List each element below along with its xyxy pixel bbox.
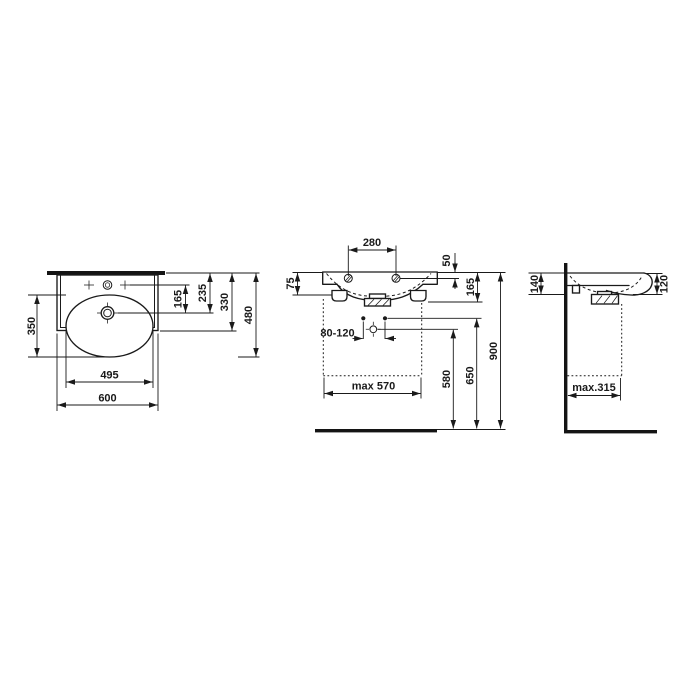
dim-label-rim-to-outlet: 165 [465, 278, 477, 296]
dim-label-overall-depth: 480 [243, 306, 255, 324]
dim-label-clearance-width: max 570 [352, 381, 395, 393]
top-view: 350 165 235 330 480 495 600 [26, 271, 260, 411]
front-view: 280 50 75 165 80-120 max 570 580 650 900 [285, 237, 506, 432]
dim-label-hole-offset: 50 [441, 254, 453, 266]
dim-label-outlet-height: 580 [441, 370, 453, 388]
dimension-drawing-canvas: 350 165 235 330 480 495 600 [0, 0, 700, 700]
dim-label-bowl-depth: 350 [26, 317, 38, 335]
right-mounting-hole-hatch [393, 275, 399, 281]
washbasin-technical-drawing: 350 165 235 330 480 495 600 [0, 0, 700, 700]
side-wall-bracket [573, 286, 580, 294]
side-view: 140 120 max.315 [529, 263, 671, 433]
dim-label-fixing-spacing: 80-120 [320, 328, 354, 340]
clearance-box-side [567, 304, 621, 376]
dim-label-fixing-height: 650 [465, 366, 477, 384]
left-mounting-hole-hatch [346, 275, 352, 281]
left-bracket-foot [332, 291, 347, 302]
dim-label-tap-centres: 280 [363, 237, 381, 249]
dim-label-front-depth: 120 [659, 275, 671, 293]
dim-label-bowl-width: 495 [100, 370, 118, 382]
dim-label-clearance-depth: max.315 [572, 382, 615, 394]
side-front-bulge [607, 273, 653, 295]
dim-label-overall-width: 600 [98, 393, 116, 405]
right-bracket-foot [411, 291, 427, 302]
dim-label-wall-depth: 140 [529, 275, 541, 293]
floor-bar-side [564, 430, 657, 433]
dim-label-rim-height: 900 [488, 342, 500, 360]
outlet-axis-symbol [370, 326, 377, 333]
bowl-outline [66, 295, 153, 357]
floor-bar-front [315, 429, 437, 432]
right-fixing-point [383, 316, 387, 320]
dim-label-tap-to-drain: 165 [173, 290, 185, 308]
wall-bar-side [564, 263, 567, 433]
dim-label-side-profile: 75 [285, 277, 297, 289]
ext-fixing-spacing [363, 322, 385, 340]
dim-label-deck-depth: 330 [219, 293, 231, 311]
side-bowl-inner-dashed [570, 276, 642, 293]
left-fixing-point [361, 316, 365, 320]
dim-label-wall-to-drain: 235 [197, 284, 209, 302]
